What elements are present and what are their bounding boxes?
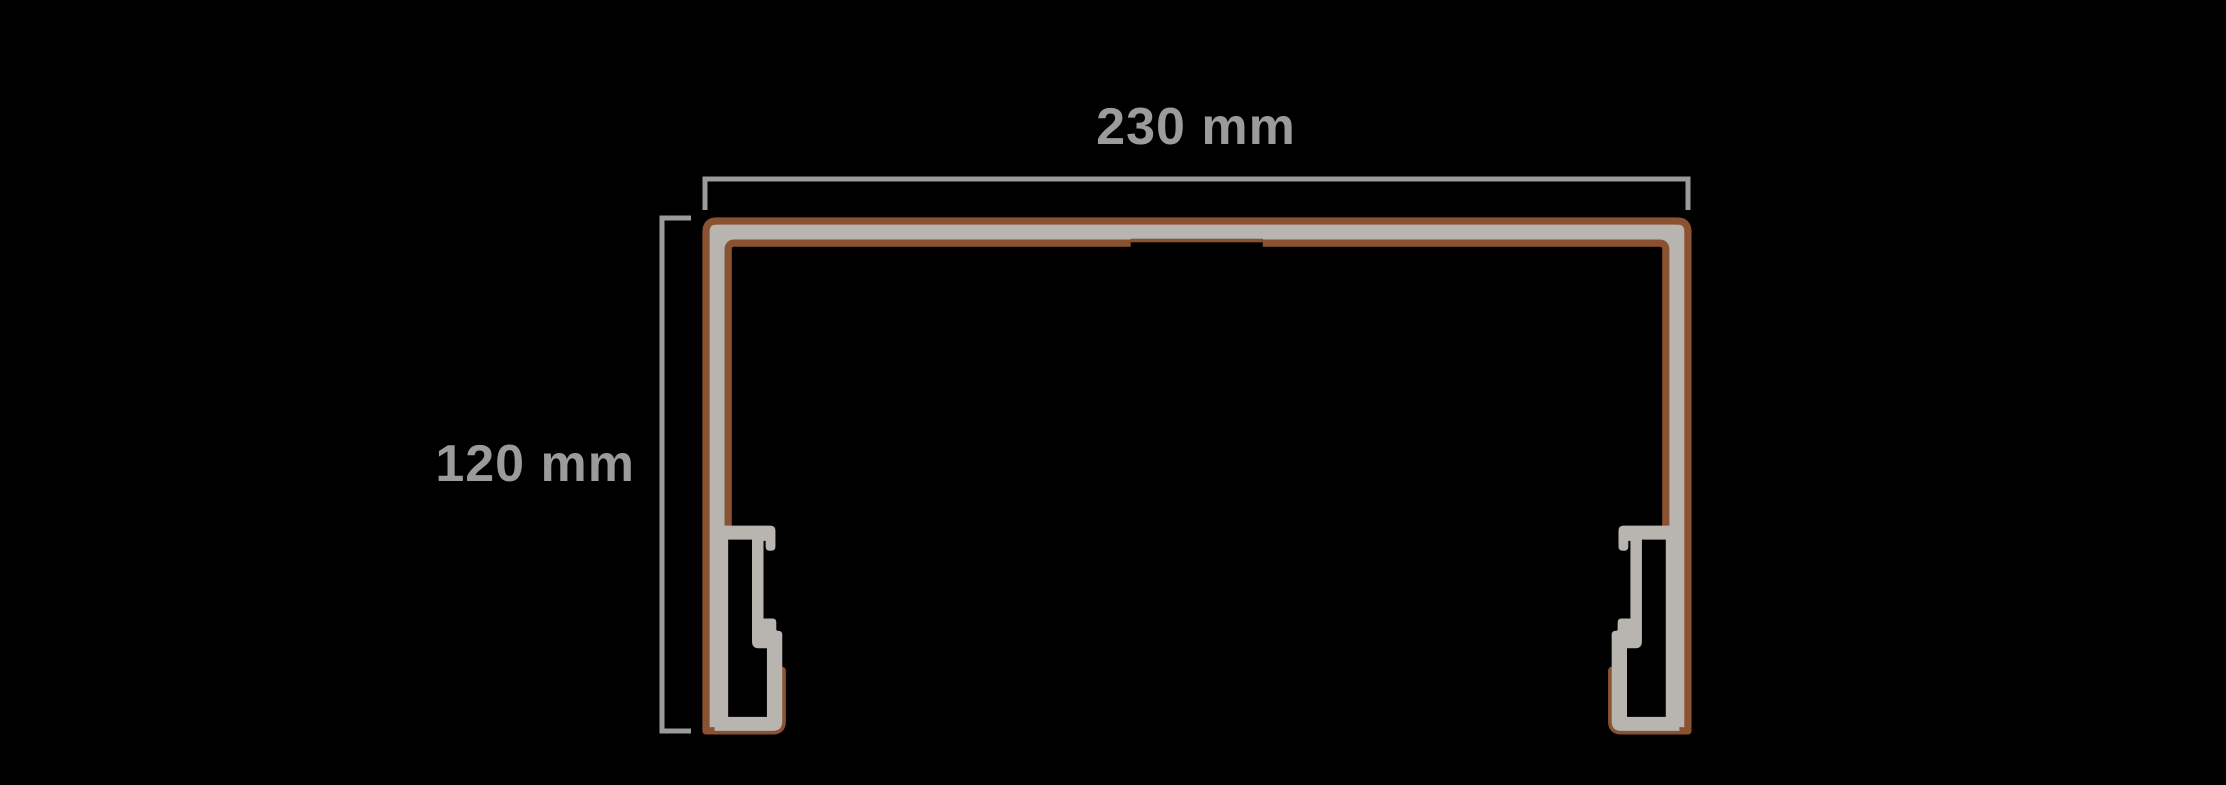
width-dimension-label: 230 mm [1096, 100, 1296, 154]
dimension-lines [662, 179, 1688, 731]
right-foot-track [1612, 526, 1682, 731]
profile-frame [706, 221, 1688, 731]
profile-cross-section [706, 221, 1688, 731]
height-dimension-label: 120 mm [435, 437, 635, 491]
height-dimension-line [662, 218, 691, 731]
top-wall-groove-edge [1131, 239, 1263, 242]
canvas: 230 mm 120 mm [0, 0, 2226, 785]
width-dimension-line [705, 179, 1688, 210]
left-foot-track [712, 526, 782, 731]
